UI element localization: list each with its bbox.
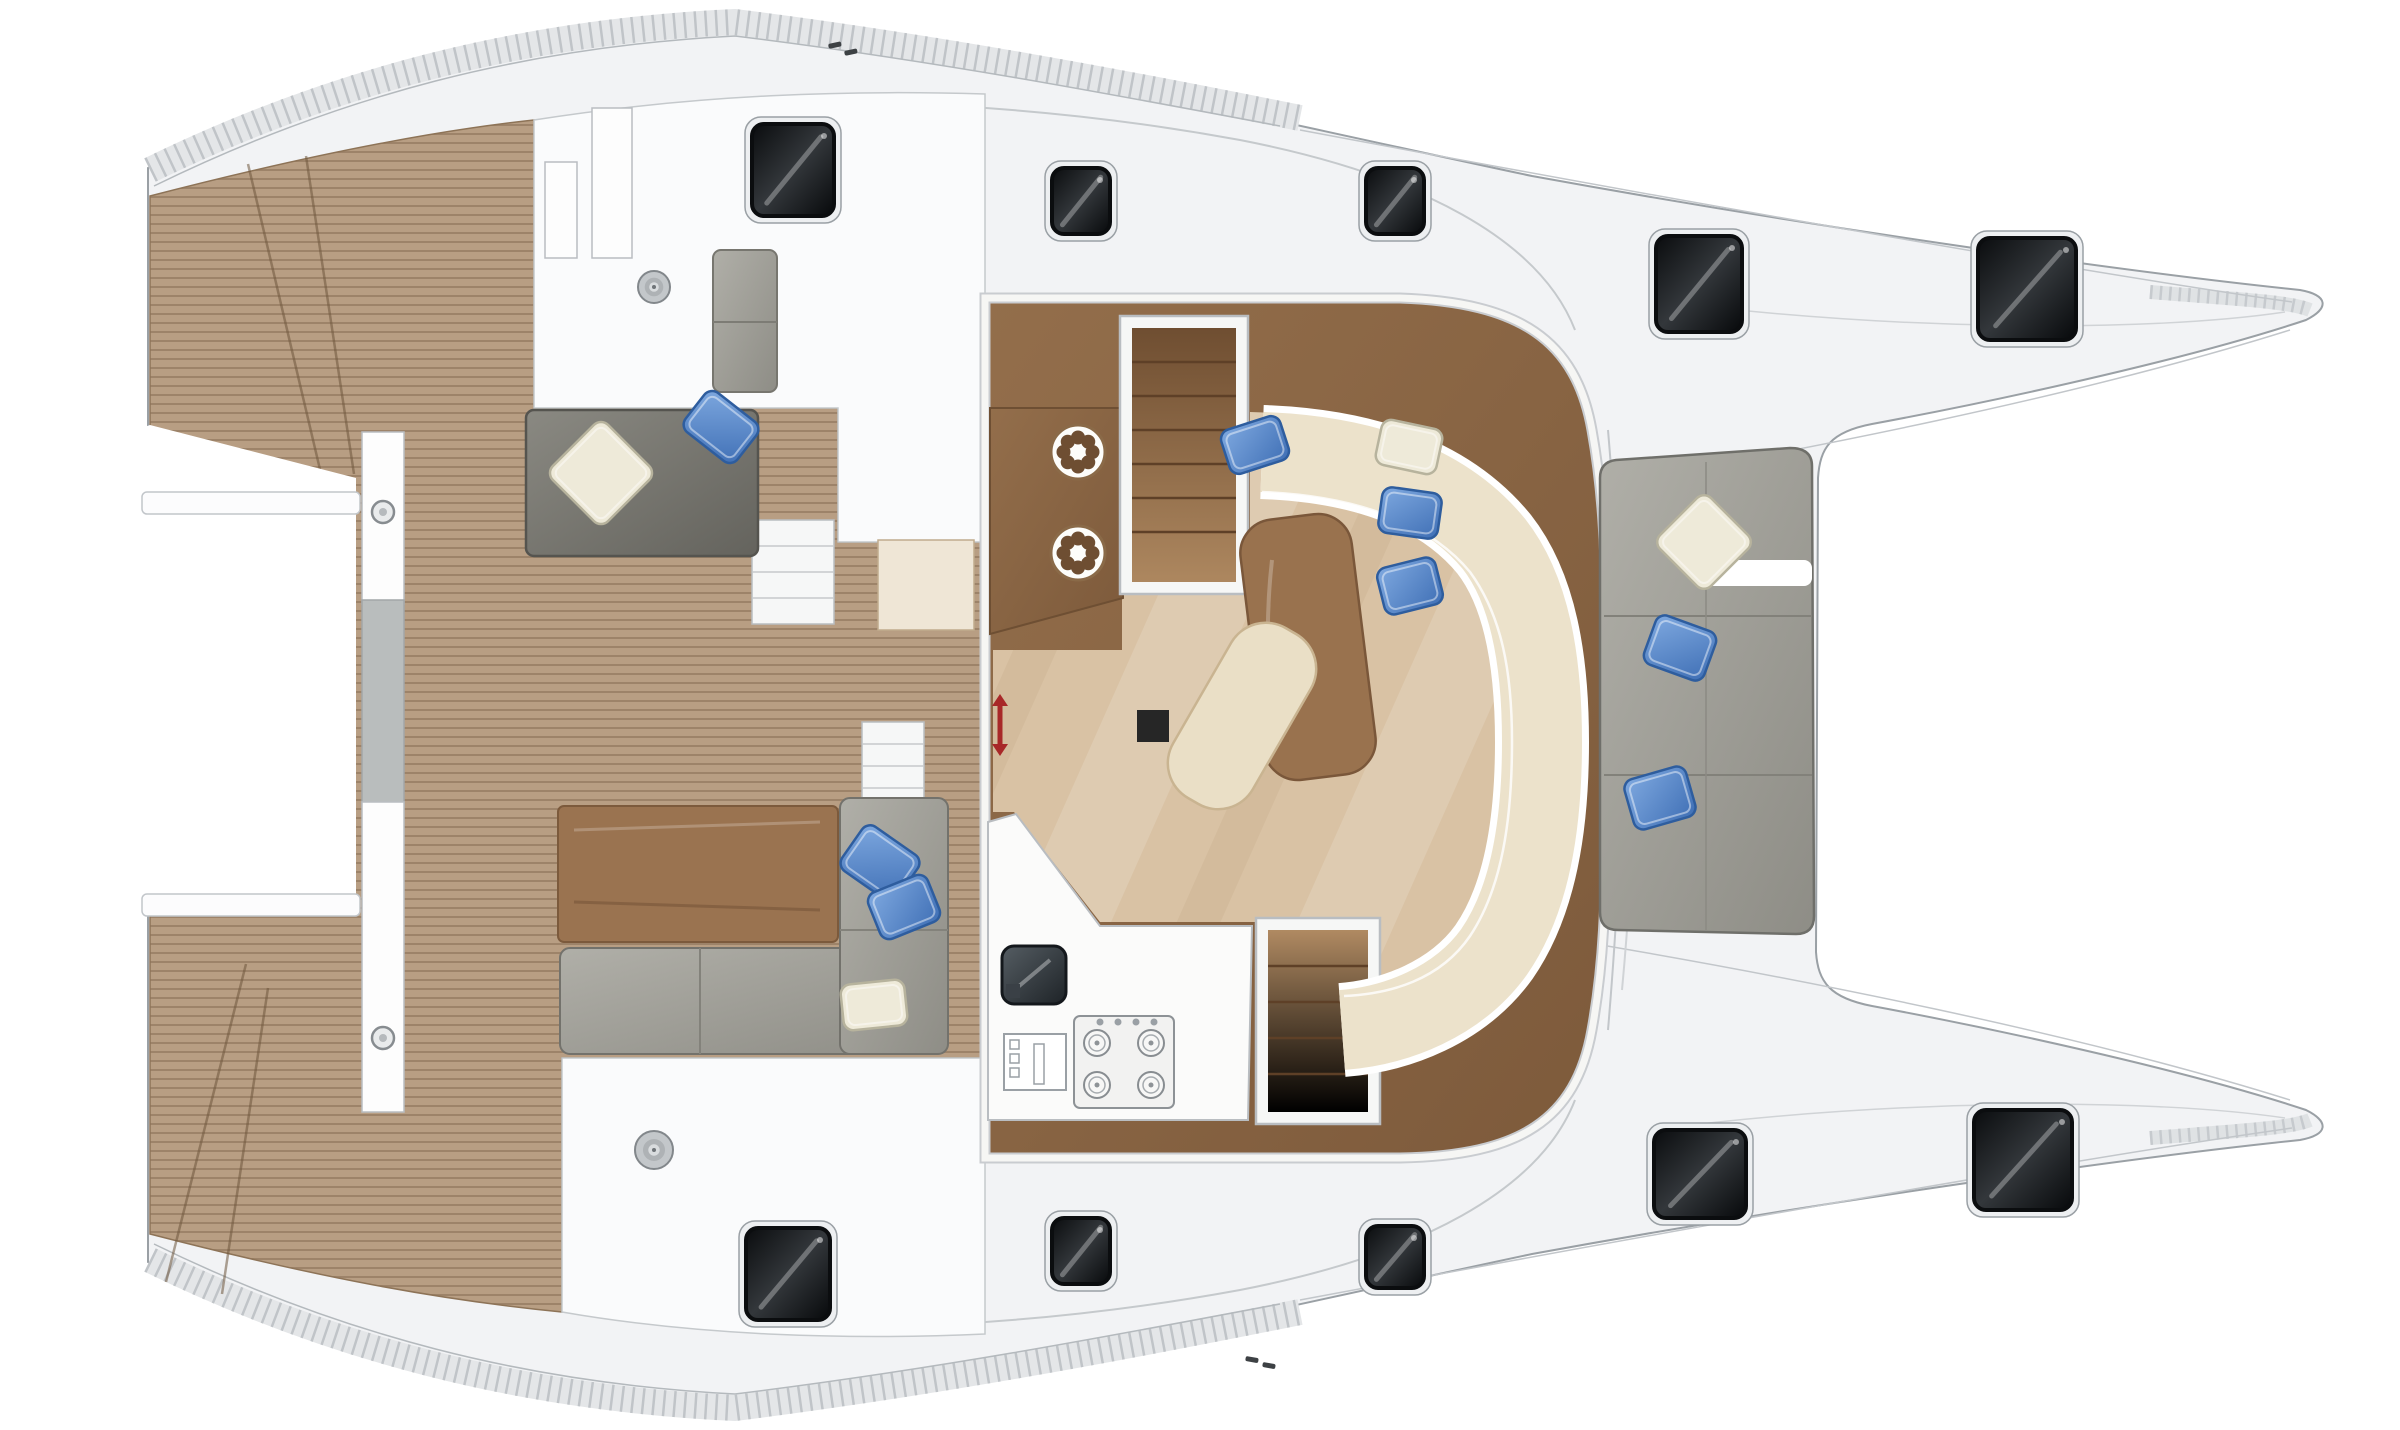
bolt-icon: [372, 1027, 394, 1049]
stove-knob: [1097, 1019, 1104, 1026]
cream-pillow: [840, 979, 908, 1031]
winch-icon: [638, 271, 670, 303]
cleat: [1262, 1362, 1276, 1369]
winch-icon: [635, 1131, 673, 1169]
deck-hatch: [1359, 161, 1431, 241]
burner-icon: [1084, 1030, 1110, 1056]
stairs: [1132, 328, 1236, 582]
deck-locker: [592, 108, 632, 258]
stove-knob: [1133, 1019, 1140, 1026]
cockpit-side-steps: [862, 722, 924, 808]
deck-hatch: [1045, 1211, 1117, 1291]
davit-posts: [362, 432, 404, 1112]
davit-post-gray: [362, 600, 404, 806]
fridge-snowflake-icon: [1051, 526, 1105, 580]
deck-hatch: [739, 1221, 837, 1327]
davit-beam: [142, 894, 360, 916]
stove-knob: [1151, 1019, 1158, 1026]
table-pedestal: [1137, 710, 1169, 742]
deck-hatch: [1971, 231, 2083, 347]
oven: [1004, 1034, 1066, 1090]
deck-locker: [545, 162, 577, 258]
davit-beam: [142, 492, 360, 514]
fridge-snowflake-icon: [1051, 425, 1105, 479]
deck-hatch: [1045, 161, 1117, 241]
stern-platform-gap: [95, 425, 360, 916]
deck-hatch: [1649, 229, 1749, 339]
stove-knob: [1115, 1019, 1122, 1026]
deck-hatch: [1359, 1219, 1431, 1295]
burner-icon: [1084, 1072, 1110, 1098]
blue-pillow: [1377, 486, 1443, 540]
deck-hatch: [745, 117, 841, 223]
burner-icon: [1138, 1072, 1164, 1098]
cleat: [1245, 1356, 1259, 1363]
burner-icon: [1138, 1030, 1164, 1056]
deck-hatch: [1967, 1103, 2079, 1217]
faucet: [1006, 984, 1020, 998]
deck-hatch: [1647, 1123, 1753, 1225]
floorplan-canvas: [0, 0, 2400, 1430]
davit-post: [362, 802, 404, 1112]
bolt-icon: [372, 501, 394, 523]
cockpit-sideboard: [878, 540, 974, 630]
catamaran-floorplan: [0, 0, 2400, 1430]
